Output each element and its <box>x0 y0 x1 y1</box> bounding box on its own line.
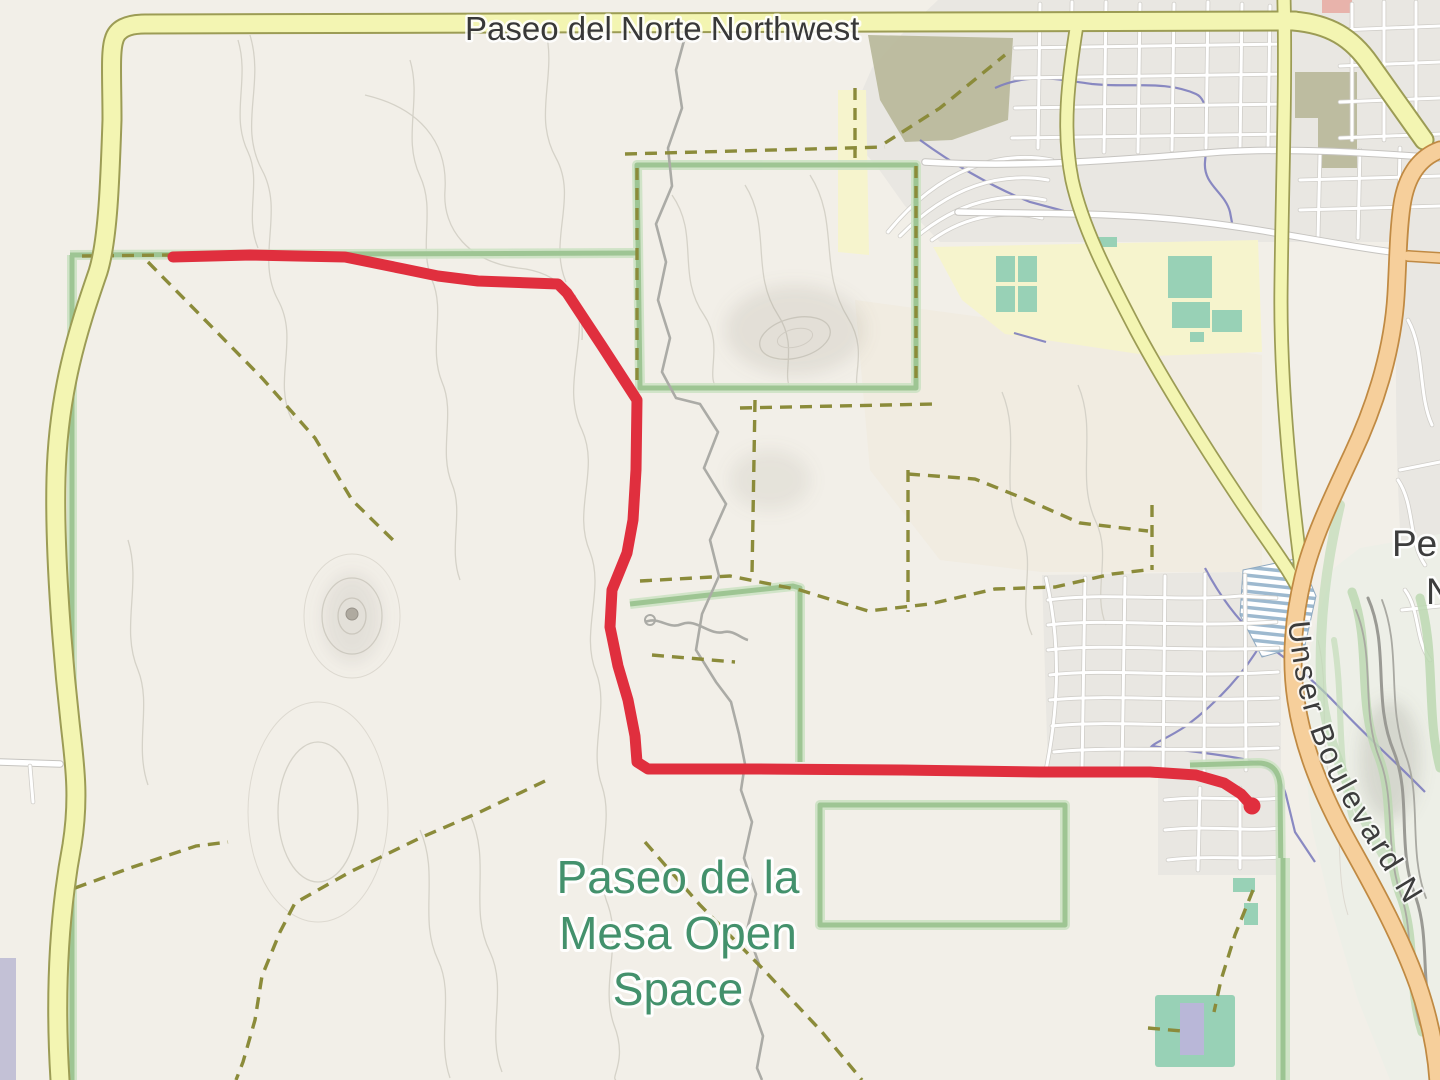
pink-block <box>1322 0 1352 13</box>
route-end-marker[interactable] <box>1244 798 1261 815</box>
top-road-label: Paseo del Norte Northwest <box>465 10 859 47</box>
map-canvas[interactable]: Paseo del Norte Northwest Paseo de la Me… <box>0 0 1440 1080</box>
lavender-block <box>0 958 16 1080</box>
open-space-label-line3: Space <box>613 963 743 1015</box>
open-space-label-line2: Mesa Open <box>559 907 797 959</box>
open-space-label-line1: Paseo de la <box>557 851 800 903</box>
edge-label-line2: N <box>1426 571 1440 612</box>
edge-label-line1: Pe <box>1392 523 1437 564</box>
